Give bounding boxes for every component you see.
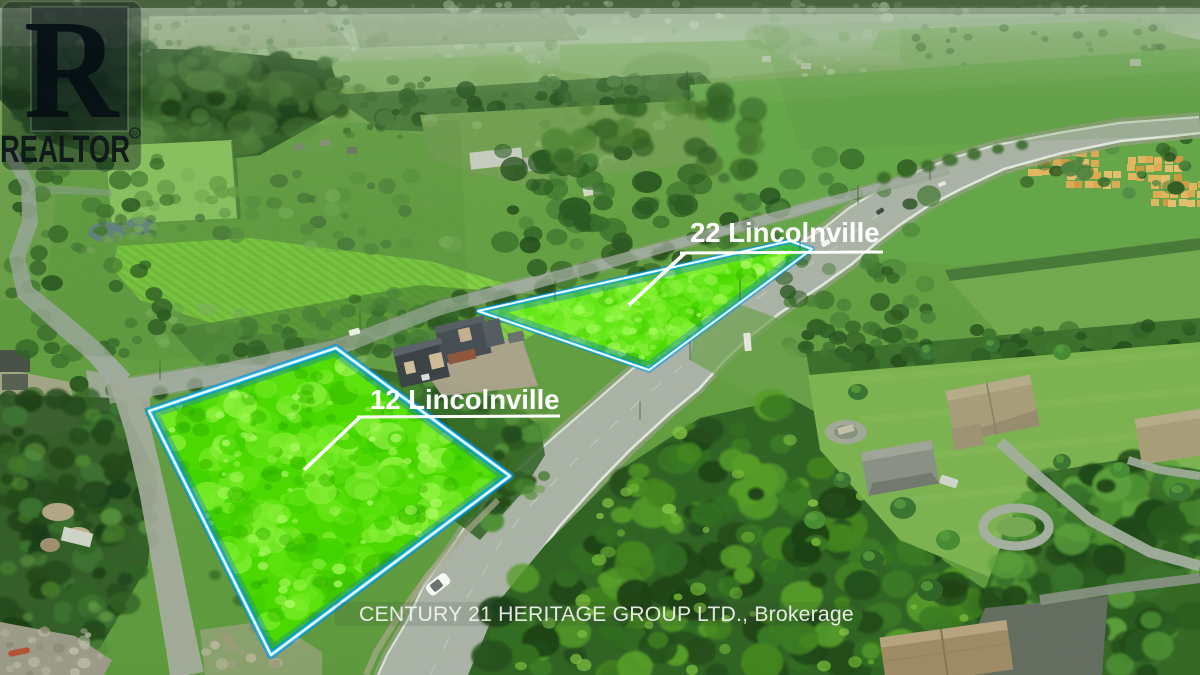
- svg-text:R: R: [24, 0, 120, 148]
- svg-text:CENTURY 21 HERITAGE GROUP LTD.: CENTURY 21 HERITAGE GROUP LTD., Brokerag…: [359, 603, 854, 626]
- svg-text:12 Lincolnville: 12 Lincolnville: [370, 384, 560, 415]
- svg-text:REALTOR: REALTOR: [0, 129, 130, 171]
- svg-text:R: R: [132, 130, 138, 139]
- svg-text:22 Lincolnville: 22 Lincolnville: [690, 217, 880, 248]
